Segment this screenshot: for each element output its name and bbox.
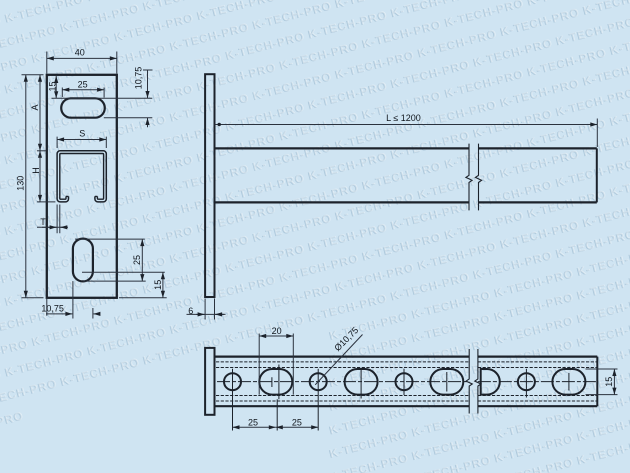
svg-text:H: H — [31, 167, 41, 174]
svg-text:S: S — [79, 129, 85, 139]
svg-text:20: 20 — [272, 326, 282, 336]
svg-text:15: 15 — [604, 377, 614, 387]
svg-text:25: 25 — [248, 418, 258, 428]
svg-text:15: 15 — [47, 81, 57, 91]
svg-text:L ≤ 1200: L ≤ 1200 — [386, 113, 421, 123]
svg-text:10,75: 10,75 — [41, 303, 64, 313]
svg-text:10,75: 10,75 — [133, 67, 143, 90]
svg-text:6: 6 — [188, 306, 193, 316]
svg-text:25: 25 — [78, 79, 88, 89]
svg-text:130: 130 — [15, 176, 25, 191]
svg-text:25: 25 — [132, 255, 142, 265]
svg-text:15: 15 — [153, 280, 163, 290]
svg-text:T: T — [40, 217, 46, 227]
svg-text:A: A — [30, 104, 40, 110]
svg-text:25: 25 — [292, 418, 302, 428]
svg-text:40: 40 — [75, 48, 85, 58]
